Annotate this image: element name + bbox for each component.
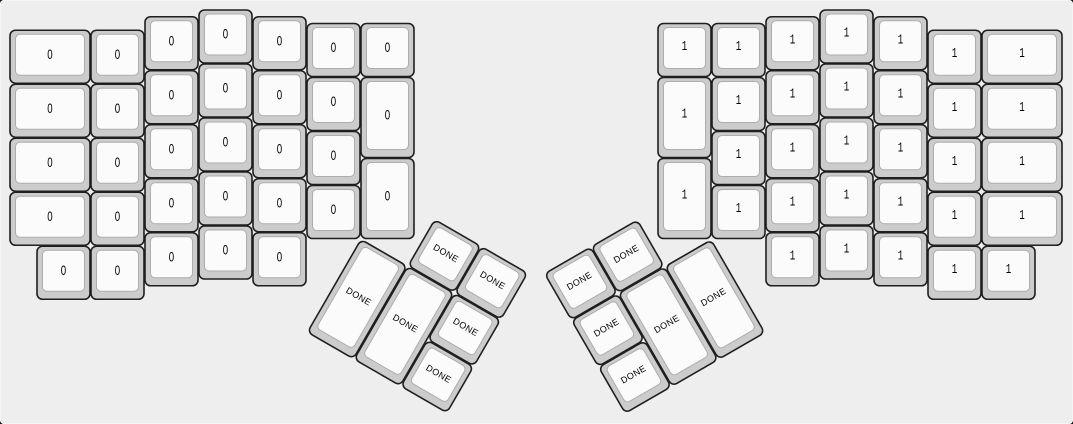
svg-text:0: 0 xyxy=(115,100,121,116)
svg-text:0: 0 xyxy=(385,39,391,55)
svg-text:1: 1 xyxy=(844,80,850,96)
svg-text:1: 1 xyxy=(952,208,958,224)
svg-text:1: 1 xyxy=(844,242,850,258)
svg-text:1: 1 xyxy=(1019,100,1025,116)
svg-text:0: 0 xyxy=(47,208,53,224)
svg-text:1: 1 xyxy=(1019,46,1025,62)
svg-text:0: 0 xyxy=(277,248,283,264)
svg-text:1: 1 xyxy=(898,86,904,102)
svg-text:0: 0 xyxy=(331,39,337,55)
svg-text:1: 1 xyxy=(844,26,850,42)
svg-text:0: 0 xyxy=(277,86,283,102)
svg-text:0: 0 xyxy=(169,86,175,102)
svg-text:1: 1 xyxy=(952,46,958,62)
svg-text:0: 0 xyxy=(277,194,283,210)
svg-text:0: 0 xyxy=(115,46,121,62)
svg-text:1: 1 xyxy=(682,188,688,204)
svg-text:0: 0 xyxy=(223,134,229,150)
svg-text:0: 0 xyxy=(47,100,53,116)
svg-text:1: 1 xyxy=(736,201,742,217)
svg-text:0: 0 xyxy=(47,154,53,170)
svg-text:0: 0 xyxy=(385,107,391,123)
svg-text:1: 1 xyxy=(1006,262,1012,278)
svg-text:1: 1 xyxy=(1019,154,1025,170)
svg-text:0: 0 xyxy=(115,208,121,224)
svg-text:0: 0 xyxy=(331,93,337,109)
svg-text:1: 1 xyxy=(844,134,850,150)
svg-text:0: 0 xyxy=(47,46,53,62)
svg-text:0: 0 xyxy=(169,248,175,264)
svg-text:0: 0 xyxy=(169,140,175,156)
svg-text:1: 1 xyxy=(952,100,958,116)
svg-text:1: 1 xyxy=(790,86,796,102)
svg-text:1: 1 xyxy=(898,194,904,210)
svg-text:0: 0 xyxy=(331,201,337,217)
svg-text:1: 1 xyxy=(682,39,688,55)
svg-text:1: 1 xyxy=(736,93,742,109)
svg-text:1: 1 xyxy=(952,154,958,170)
svg-text:0: 0 xyxy=(115,262,121,278)
svg-text:1: 1 xyxy=(898,140,904,156)
svg-text:0: 0 xyxy=(223,242,229,258)
svg-text:1: 1 xyxy=(790,194,796,210)
svg-text:1: 1 xyxy=(898,248,904,264)
svg-text:0: 0 xyxy=(223,26,229,42)
svg-text:0: 0 xyxy=(223,80,229,96)
svg-text:0: 0 xyxy=(169,194,175,210)
svg-text:0: 0 xyxy=(169,32,175,48)
svg-text:0: 0 xyxy=(385,188,391,204)
svg-text:0: 0 xyxy=(277,140,283,156)
svg-text:1: 1 xyxy=(736,147,742,163)
svg-text:0: 0 xyxy=(223,188,229,204)
svg-text:0: 0 xyxy=(277,32,283,48)
svg-text:1: 1 xyxy=(682,107,688,123)
svg-text:0: 0 xyxy=(331,147,337,163)
svg-text:1: 1 xyxy=(790,248,796,264)
svg-text:0: 0 xyxy=(61,262,67,278)
svg-text:0: 0 xyxy=(115,154,121,170)
svg-text:1: 1 xyxy=(736,39,742,55)
svg-text:1: 1 xyxy=(790,140,796,156)
svg-text:1: 1 xyxy=(898,32,904,48)
svg-text:1: 1 xyxy=(952,262,958,278)
svg-text:1: 1 xyxy=(790,32,796,48)
svg-text:1: 1 xyxy=(844,188,850,204)
svg-text:1: 1 xyxy=(1019,208,1025,224)
